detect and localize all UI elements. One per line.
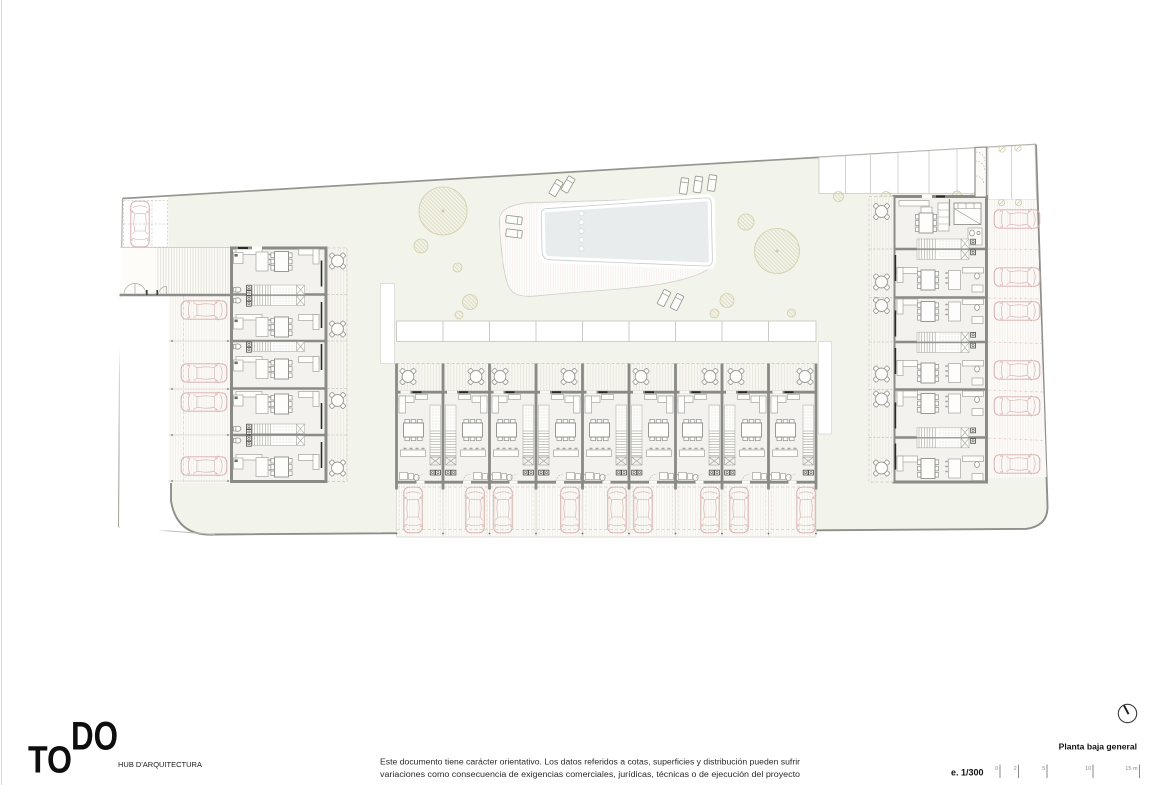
svg-text:e. 1/300: e. 1/300 [951, 768, 984, 778]
svg-text:15 m: 15 m [1125, 766, 1138, 772]
svg-text:5: 5 [1042, 766, 1045, 772]
svg-text:HUB D'ARQUITECTURA: HUB D'ARQUITECTURA [118, 760, 203, 769]
svg-text:DO: DO [71, 715, 118, 759]
svg-text:TO: TO [28, 740, 72, 782]
svg-text:variaciones como consecuencia: variaciones como consecuencia de exigenc… [380, 770, 801, 779]
svg-text:2: 2 [1014, 766, 1017, 772]
svg-text:10: 10 [1085, 766, 1091, 772]
svg-text:Planta baja general: Planta baja general [1059, 742, 1137, 752]
svg-text:Este documento tiene carácter: Este documento tiene carácter orientativ… [380, 758, 800, 767]
svg-text:0: 0 [995, 766, 998, 772]
